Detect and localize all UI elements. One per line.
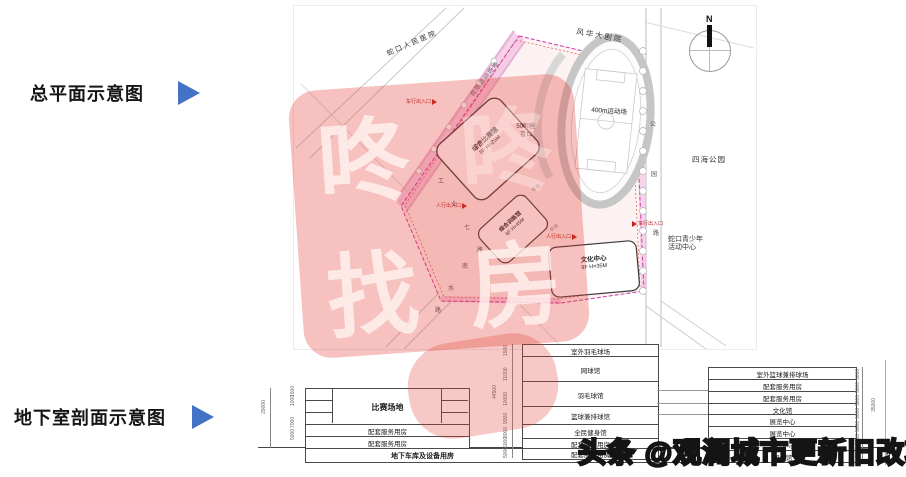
dim-number: 5000 xyxy=(291,428,296,440)
road-char: 路 xyxy=(435,305,441,314)
dim-number: 10000 xyxy=(504,381,509,406)
dim-number: 5000 xyxy=(856,380,861,393)
section-row: 羽毛球馆 xyxy=(522,381,659,408)
dim-number: 7000 xyxy=(291,406,296,428)
credit-watermark: 头条 @观澜城市更新旧改项目 xyxy=(578,431,906,471)
section-stand-column xyxy=(306,389,333,423)
floor-line xyxy=(657,403,708,404)
park-label: 四海公园 xyxy=(692,156,726,165)
dim-number: 44500 xyxy=(493,385,498,399)
dim-number: 1000 xyxy=(291,397,296,406)
youth-center-line2: 活动中心 xyxy=(668,244,703,252)
entrance-label: 人行出入口 xyxy=(546,233,571,240)
arrow-right-icon xyxy=(192,405,214,429)
arrow-right-icon xyxy=(178,81,200,105)
dim-number: 1500 xyxy=(504,344,509,356)
road-char: 路 xyxy=(477,245,483,254)
dim-number: 5000 xyxy=(856,406,861,419)
compass-north-label: N xyxy=(706,14,713,24)
dim-stack: 1500 1000 7000 5000 xyxy=(291,388,296,440)
stand-label-line2: 看台 xyxy=(506,132,546,140)
road-char: 南 xyxy=(462,261,468,270)
dim-line xyxy=(270,388,271,448)
dim-number: 5000 xyxy=(856,367,861,380)
dim-number: 11000 xyxy=(504,356,509,381)
entrance-marker-icon xyxy=(572,234,577,240)
entrance-label: 人行出入口 xyxy=(436,202,461,209)
entrance-vehicle: 车行出入口 xyxy=(632,220,663,227)
dim-stack: 1500 11000 10000 9000 8000 6000 5000 xyxy=(504,344,509,458)
road-char: 园 xyxy=(651,169,657,178)
road-char: 七 xyxy=(464,222,470,231)
floor-line xyxy=(657,414,708,415)
section-row: 网球馆 xyxy=(522,356,659,383)
dim-number: 29000 xyxy=(262,400,267,414)
garage-label: 地下车库及设备用房 xyxy=(391,451,454,461)
dim-number: 5000 xyxy=(856,393,861,406)
section-stand-column xyxy=(441,389,468,423)
dim-number: 9000 xyxy=(504,406,509,424)
road-char: 路 xyxy=(653,228,659,237)
entrance-marker-icon xyxy=(632,221,637,227)
road-char: 公 xyxy=(650,119,656,128)
site-plan-graphics xyxy=(294,6,756,349)
entrance-label: 车行出入口 xyxy=(406,98,431,105)
site-plan-drawing: 蛇口人民医院 风华大剧院 四海公园 蛇口青少年 活动中心 极限运动场地 工 业 … xyxy=(293,5,757,350)
floor-line xyxy=(657,390,708,391)
entrance-vehicle: 车行出入口 xyxy=(406,98,437,105)
dim-number: 8000 xyxy=(504,424,509,438)
entrance-pedestrian: 人行出入口 xyxy=(546,233,577,240)
youth-center-label: 蛇口青少年 活动中心 xyxy=(668,236,703,252)
youth-center-line1: 蛇口青少年 xyxy=(668,236,703,244)
basement-caption: 地下室剖面示意图 xyxy=(14,404,166,430)
road-char: 水 xyxy=(448,283,454,292)
entrance-pedestrian: 人行出入口 xyxy=(436,202,467,209)
section-row: 篮球兼排球馆 xyxy=(522,406,659,426)
entrance-label: 车行出入口 xyxy=(638,220,663,227)
dim-line xyxy=(512,344,513,458)
compass-icon xyxy=(689,30,731,72)
road-char: 工 xyxy=(438,176,444,185)
slide: 总平面示意图 地下室剖面示意图 xyxy=(0,0,906,477)
entrance-marker-icon xyxy=(432,99,437,105)
site-plan-caption: 总平面示意图 xyxy=(30,80,144,106)
dim-number: 5000 xyxy=(504,448,509,458)
entrance-marker-icon xyxy=(462,203,467,209)
dim-number: 35000 xyxy=(872,398,877,412)
